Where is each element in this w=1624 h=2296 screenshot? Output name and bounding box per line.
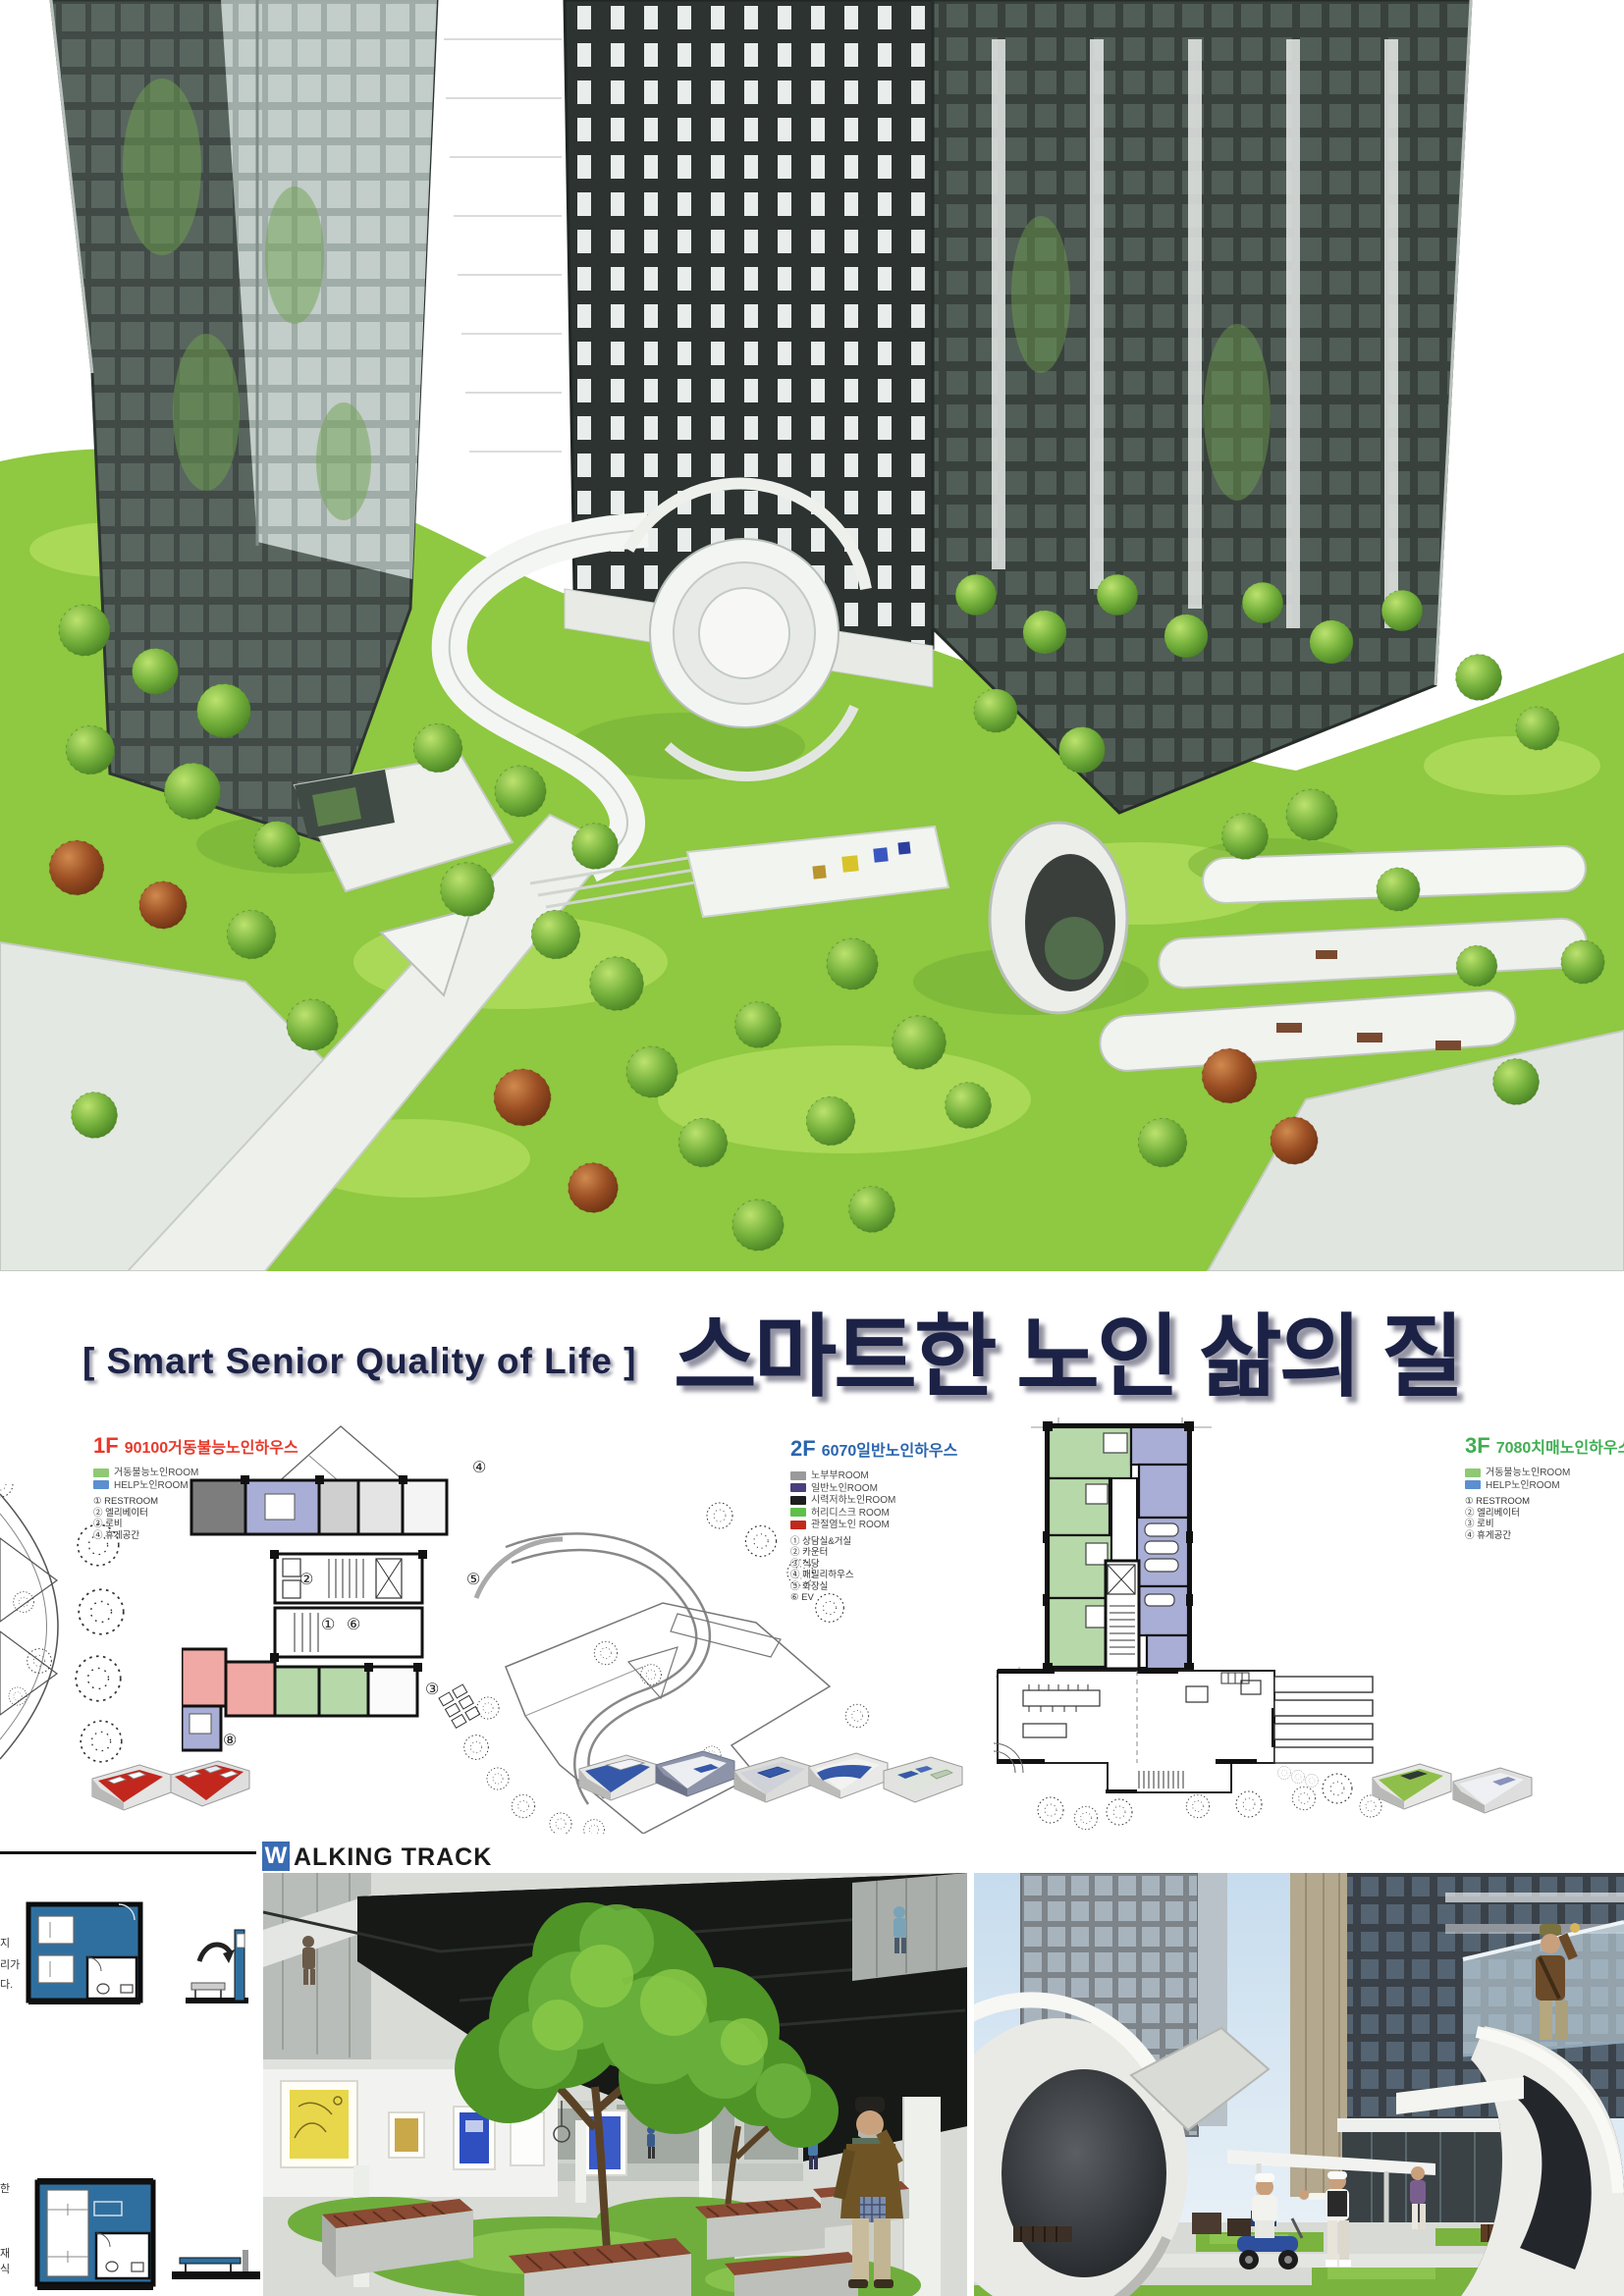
room-swatch bbox=[790, 1496, 806, 1505]
room-swatch bbox=[93, 1468, 109, 1477]
room-swatch bbox=[790, 1508, 806, 1517]
section-detail bbox=[180, 1922, 253, 2008]
unit-plan-detail bbox=[25, 1895, 147, 2010]
plan-3f-floor: 3F bbox=[1465, 1433, 1490, 1458]
walking-woman-figure bbox=[1410, 2166, 1426, 2229]
title-english: [ Smart Senior Quality of Life ] bbox=[82, 1341, 636, 1382]
walking-track-initial: W bbox=[262, 1842, 290, 1871]
axon-room-blue bbox=[882, 1753, 964, 1808]
unit-plan-detail bbox=[29, 2174, 162, 2292]
plan-2f-floor: 2F bbox=[790, 1436, 816, 1461]
room-swatch bbox=[790, 1471, 806, 1480]
plan-1f-floor: 1F bbox=[93, 1433, 119, 1458]
plan-2f-drawing bbox=[990, 1414, 1382, 1834]
plan-3f-title: 3F7080치매노인하우스 bbox=[1465, 1433, 1624, 1459]
svg-text:①: ① bbox=[321, 1617, 335, 1633]
svg-text:⑤: ⑤ bbox=[466, 1572, 480, 1588]
margin-text-fragment: 리가 bbox=[0, 1959, 20, 1971]
axon-room-red bbox=[90, 1761, 173, 1816]
title-korean: 스마트한 노인 삶의 질 bbox=[674, 1284, 1624, 1415]
room-swatch bbox=[790, 1483, 806, 1492]
plan-3f-name: 7080치매노인하우스 bbox=[1496, 1440, 1624, 1457]
axon-room-green bbox=[1371, 1759, 1453, 1816]
margin-text-fragment: 한 bbox=[0, 2183, 10, 2195]
axon-room-red bbox=[169, 1757, 251, 1812]
margin-text-fragment: 지 bbox=[0, 1938, 10, 1949]
room-swatch bbox=[93, 1480, 109, 1489]
plan-2f-name: 6070일반노인하우스 bbox=[822, 1443, 958, 1460]
walking-track-render bbox=[263, 1873, 967, 2296]
plan-2f-block: 2F6070일반노인하우스 노부부ROOM 일반노인ROOM 시력저하노인ROO… bbox=[790, 1436, 957, 1604]
axon-room-blue bbox=[577, 1751, 660, 1806]
room-swatch bbox=[1465, 1480, 1481, 1489]
margin-text-fragment: 식 bbox=[0, 2264, 10, 2275]
site-render bbox=[0, 0, 1624, 1271]
plan-2f-legend: 노부부ROOM 일반노인ROOM 시력저하노인ROOM 허리디스크 ROOM 관… bbox=[790, 1470, 957, 1604]
room-swatch bbox=[1465, 1468, 1481, 1477]
presentation-board: [ Smart Senior Quality of Life ] 스마트한 노인… bbox=[0, 0, 1624, 2296]
margin-text-fragment: 다. bbox=[0, 1979, 13, 1991]
margin-text-fragment: 재 bbox=[0, 2248, 10, 2260]
plan-2f-title: 2F6070일반노인하우스 bbox=[790, 1436, 957, 1462]
svg-text:⑥: ⑥ bbox=[347, 1617, 360, 1633]
plan-3f-block: 3F7080치매노인하우스 거동불능노인ROOM HELP노인ROOM ① RE… bbox=[1465, 1433, 1624, 1541]
axon-room-blue bbox=[807, 1749, 890, 1804]
heading-rule bbox=[0, 1851, 256, 1854]
tube-pavilion-render bbox=[974, 1873, 1624, 2296]
axon-room-green bbox=[1451, 1763, 1534, 1820]
axon-room-blue bbox=[654, 1747, 736, 1802]
axon-room-blue bbox=[732, 1753, 815, 1808]
svg-text:⑧: ⑧ bbox=[223, 1733, 237, 1749]
tower-right bbox=[933, 0, 1471, 813]
svg-text:④: ④ bbox=[472, 1460, 486, 1476]
plan-3f-legend: 거동불능노인ROOM HELP노인ROOM ① RESTROOM ② 엘리베이터… bbox=[1465, 1468, 1624, 1541]
room-swatch bbox=[790, 1521, 806, 1529]
svg-text:③: ③ bbox=[425, 1682, 439, 1698]
section-detail bbox=[172, 2246, 260, 2280]
svg-text:②: ② bbox=[299, 1572, 313, 1588]
walking-track-heading: ALKING TRACK bbox=[294, 1843, 492, 1872]
